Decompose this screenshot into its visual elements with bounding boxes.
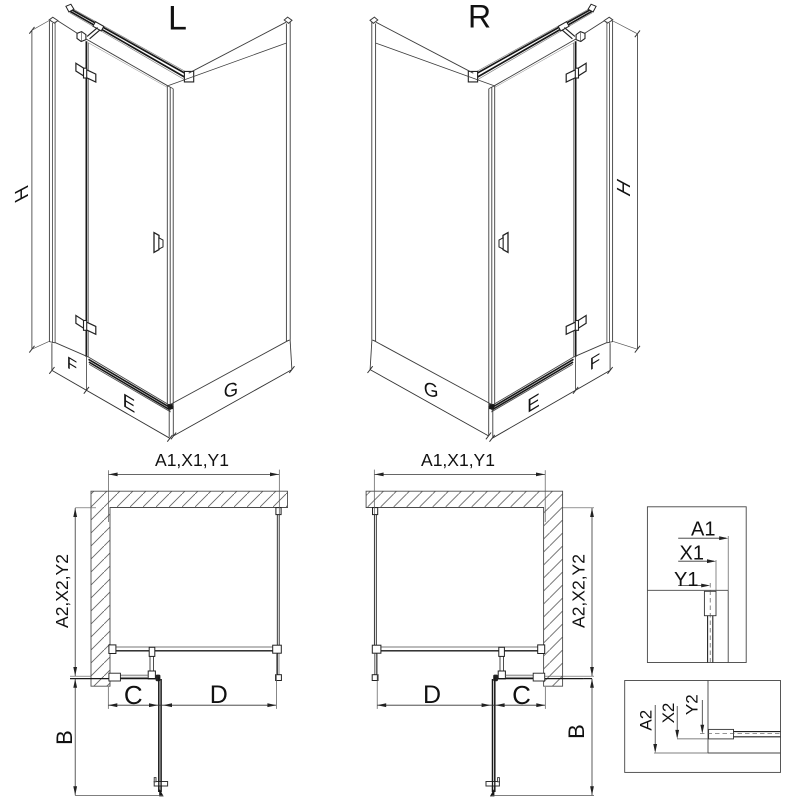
svg-text:A2: A2 bbox=[637, 710, 656, 731]
svg-text:R: R bbox=[468, 0, 491, 35]
svg-text:B: B bbox=[52, 730, 77, 745]
svg-text:A1,X1,Y1: A1,X1,Y1 bbox=[421, 450, 495, 470]
svg-text:A1: A1 bbox=[691, 519, 715, 541]
svg-text:L: L bbox=[168, 0, 187, 38]
svg-text:D: D bbox=[423, 681, 441, 709]
svg-text:D: D bbox=[210, 681, 228, 709]
svg-text:G: G bbox=[223, 379, 239, 403]
svg-text:B: B bbox=[564, 724, 589, 739]
svg-text:C: C bbox=[124, 680, 143, 710]
svg-text:X1: X1 bbox=[680, 542, 704, 564]
svg-text:Y1: Y1 bbox=[674, 569, 698, 591]
svg-text:X2: X2 bbox=[659, 703, 678, 724]
svg-text:A2,X2,Y2: A2,X2,Y2 bbox=[569, 554, 589, 628]
svg-text:C: C bbox=[512, 680, 531, 710]
svg-text:Y2: Y2 bbox=[683, 694, 702, 715]
svg-text:G: G bbox=[423, 379, 439, 403]
svg-text:A1,X1,Y1: A1,X1,Y1 bbox=[155, 450, 229, 470]
svg-text:A2,X2,Y2: A2,X2,Y2 bbox=[52, 554, 72, 628]
